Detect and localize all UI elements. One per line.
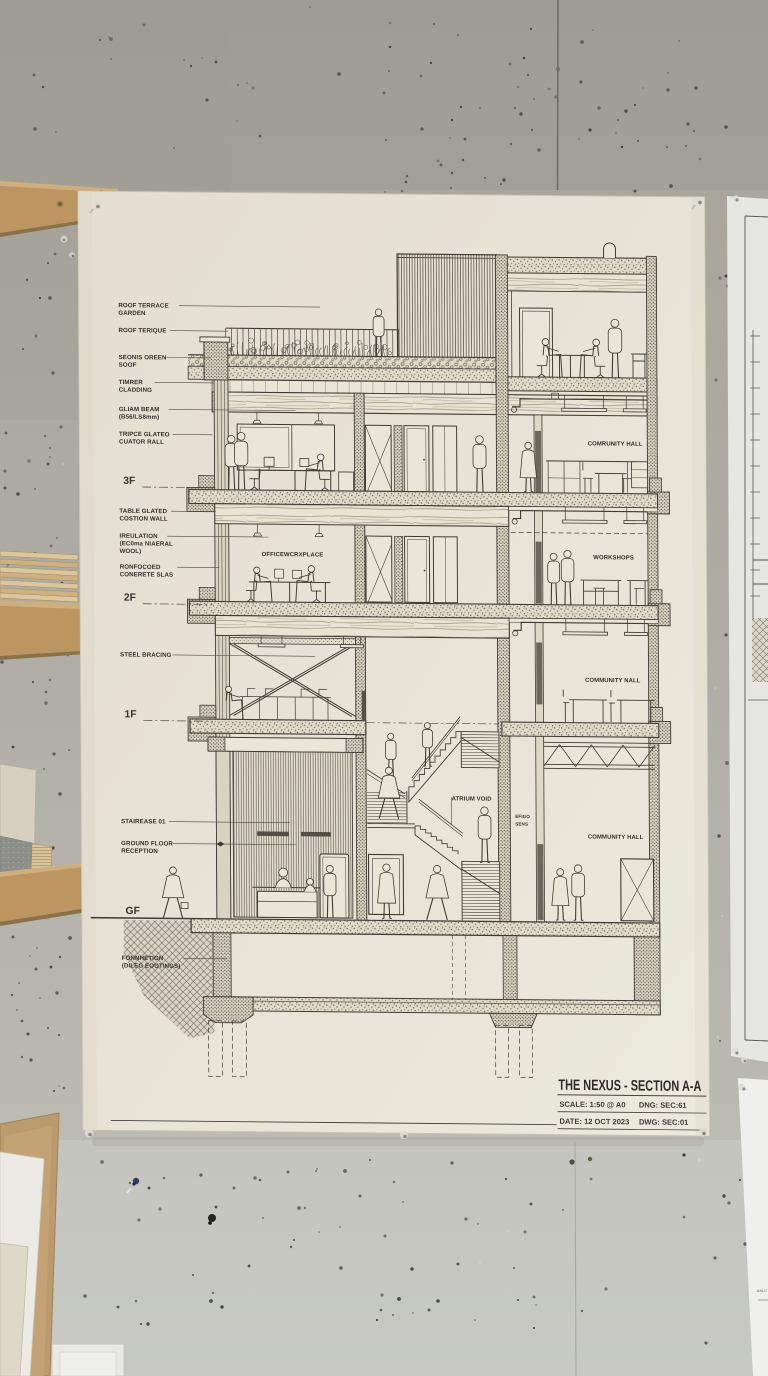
svg-text:CLADDING: CLADDING (119, 387, 152, 394)
svg-text:CUATOR RALL: CUATOR RALL (119, 438, 164, 445)
svg-text:6ALC: 6ALC (757, 1288, 767, 1293)
svg-text:(DILEG EOOTINGS): (DILEG EOOTINGS) (122, 962, 181, 970)
svg-text:COMRUNITY HALL: COMRUNITY HALL (588, 441, 643, 448)
svg-text:TRIPCE GLATEO: TRIPCE GLATEO (119, 431, 170, 439)
svg-text:THE NEXUS - SECTION A-A: THE NEXUS - SECTION A-A (558, 1077, 701, 1095)
svg-text:(B56/LS8mm): (B56/LS8mm) (119, 414, 159, 421)
svg-text:TABLE GLATED: TABLE GLATED (119, 508, 167, 515)
svg-text:DNG: SEC:61: DNG: SEC:61 (639, 1100, 687, 1109)
svg-text:EFIGO: EFIGO (515, 814, 530, 819)
svg-text:DATE: 12 OCT 2023: DATE: 12 OCT 2023 (560, 1117, 630, 1127)
svg-text:GF: GF (125, 906, 140, 917)
svg-text:ROOF TERIQUE: ROOF TERIQUE (118, 327, 166, 334)
svg-text:STAIREASE 01: STAIREASE 01 (121, 818, 166, 825)
svg-text:COMMUNITY NALL: COMMUNITY NALL (585, 678, 641, 685)
svg-text:IREULATION: IREULATION (120, 533, 159, 540)
svg-text:SCALE: 1:50 @ A0: SCALE: 1:50 @ A0 (559, 1100, 625, 1110)
svg-text:GROUND FLOOR: GROUND FLOOR (121, 840, 173, 848)
svg-text:RECEPTION: RECEPTION (121, 848, 158, 855)
svg-text:GARDEN: GARDEN (118, 310, 146, 317)
svg-text:ROOF TERRACE: ROOF TERRACE (118, 302, 168, 309)
svg-text:RONFOCOED: RONFOCOED (120, 564, 161, 571)
svg-text:OFFICEWCRXPLACE: OFFICEWCRXPLACE (262, 552, 324, 559)
svg-text:(EC0ma NIAERAL: (EC0ma NIAERAL (120, 540, 173, 548)
svg-text:CONERETE SLAS: CONERETE SLAS (120, 571, 174, 579)
svg-text:GLIAM BEAM: GLIAM BEAM (119, 406, 160, 413)
svg-text:SEONIS OREEN: SEONIS OREEN (119, 354, 167, 361)
svg-text:STEEL BRACING: STEEL BRACING (120, 651, 171, 659)
svg-text:ATRIUM VOID: ATRIUM VOID (452, 796, 493, 802)
svg-text:WOOL): WOOL) (120, 548, 142, 555)
svg-text:2F: 2F (124, 593, 136, 604)
svg-text:FONNHETION: FONNHETION (122, 955, 164, 962)
svg-text:COMMUNITY HALL: COMMUNITY HALL (588, 835, 644, 842)
svg-text:SENS: SENS (515, 821, 528, 826)
svg-text:1F: 1F (124, 709, 136, 720)
svg-text:TIMRER: TIMRER (119, 379, 144, 386)
svg-text:3F: 3F (123, 476, 135, 487)
svg-text:DWG: SEC:01: DWG: SEC:01 (639, 1117, 688, 1126)
svg-text:SOOF: SOOF (119, 362, 137, 369)
svg-text:COSTION WALL: COSTION WALL (119, 515, 167, 522)
svg-text:WORKSHOPS: WORKSHOPS (593, 555, 634, 561)
